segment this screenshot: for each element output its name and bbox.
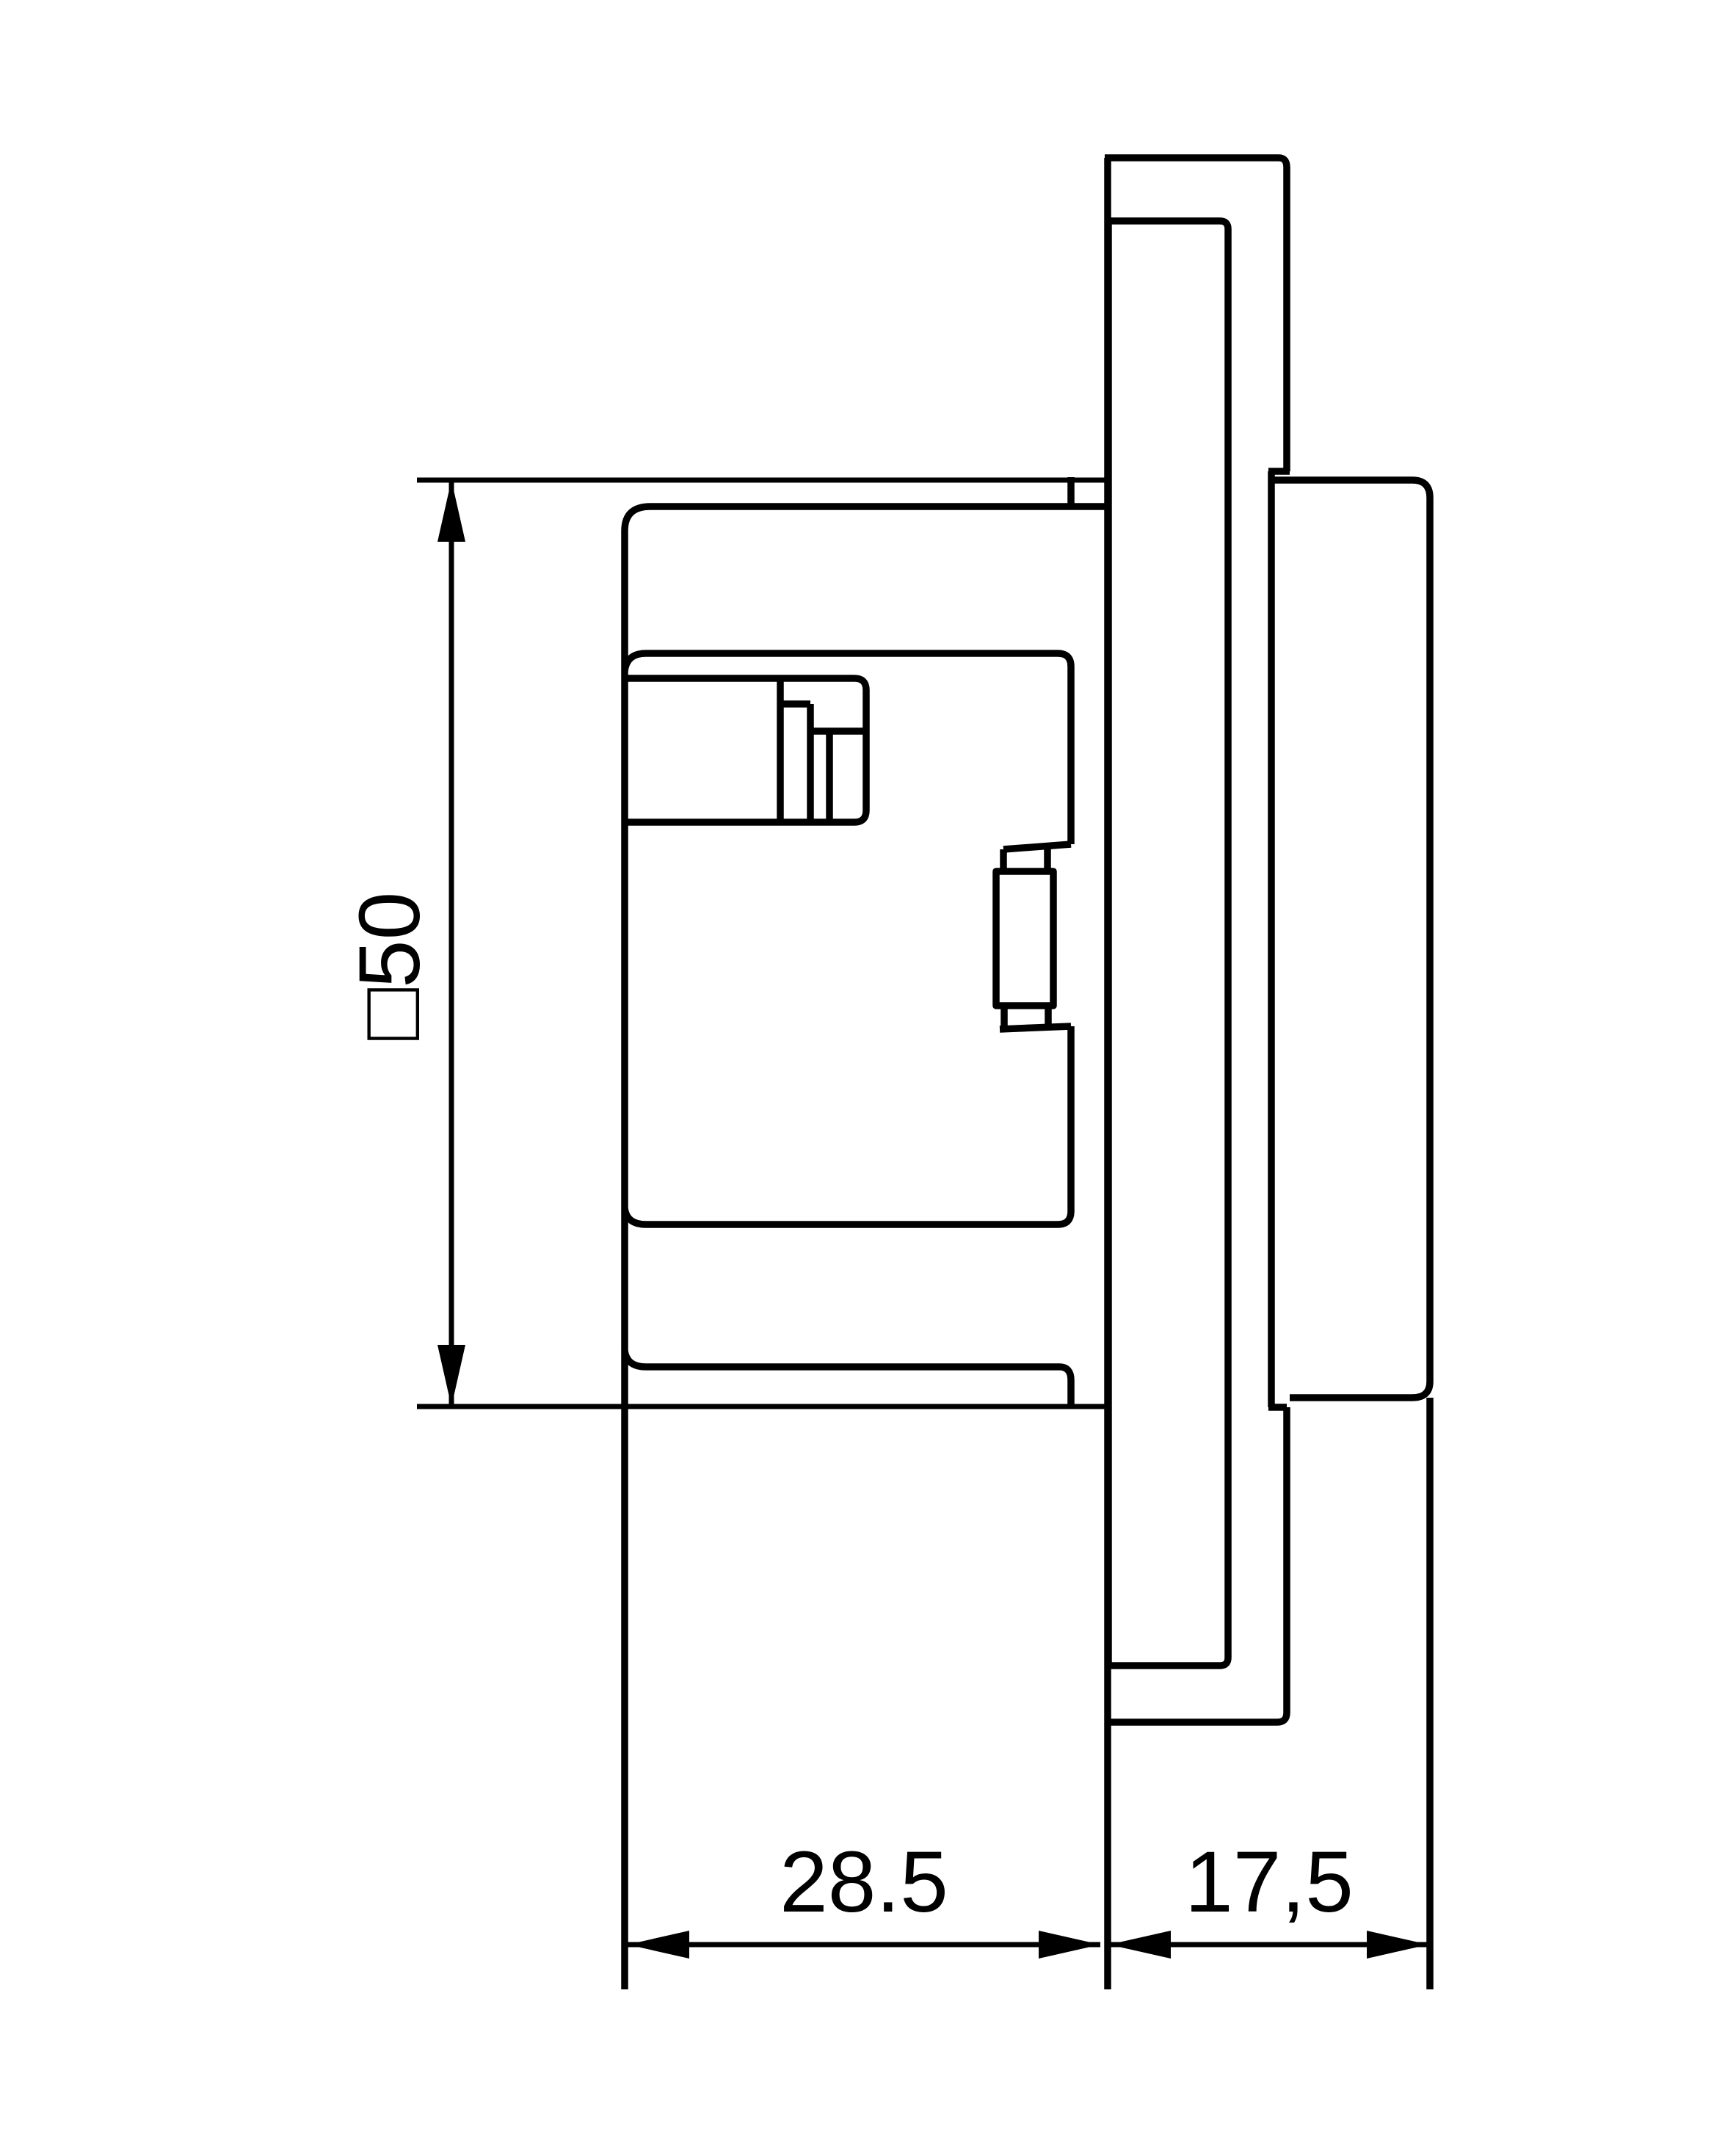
clip-bottom-step [1000, 1026, 1071, 1029]
flush-depth-dimension-label: 17,5 [1185, 1834, 1354, 1931]
drawing-background [0, 0, 1736, 2145]
height-dimension-label: □50 [341, 892, 438, 1041]
technical-drawing: □50 28.5 17,5 [0, 0, 1736, 2145]
body-depth-dimension-label: 28.5 [780, 1834, 948, 1931]
